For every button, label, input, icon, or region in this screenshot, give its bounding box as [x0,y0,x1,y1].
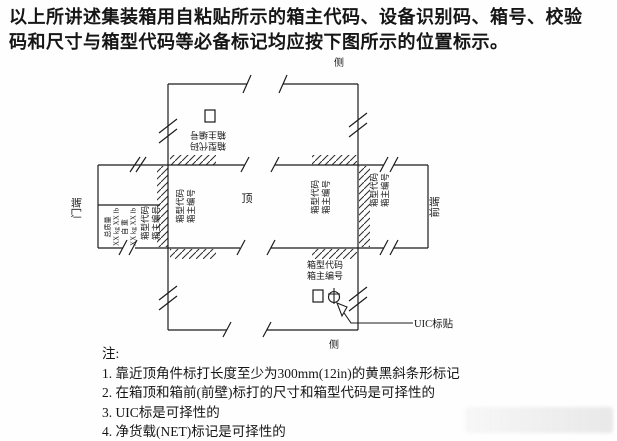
owner-number-label: 箱主编号 [380,173,390,207]
marking-pair-roof-right: 箱型代码 箱主编号 [310,180,331,214]
owner-number-label: 箱主编号 [321,180,331,214]
document-page: 以上所讲述集装箱用自粘贴所示的箱主代码、设备识别码、箱号、校验 码和尺寸与箱型代… [0,0,617,441]
stripe-mark-square-side [313,290,323,302]
gross-weight-value: XX kg XX lb [113,208,121,246]
type-code-label: 箱型代码 [175,189,185,223]
watermark [465,407,613,433]
type-code-label: 箱型代码 [307,259,343,270]
weight-markings: 总质量 XX kg XX lb 自 重 XX kg XX lb [103,208,138,246]
hatch-strip [170,249,216,259]
notes-title: 注: [102,344,522,364]
gross-weight-label: 总质量 [103,217,112,238]
stripe-mark-square-roof [205,110,215,122]
front-end-label: 前端 [428,196,441,217]
roof-label: 顶 [242,192,253,205]
owner-number-label: 箱主编号 [186,189,196,223]
hatch-strip [312,155,357,165]
tare-weight-label: 自 重 [120,219,129,235]
type-code-label: 箱型代码 [369,173,379,207]
hatch-strip [170,155,216,165]
uic-symbol [328,288,340,304]
owner-number-label: 箱主编号 [190,130,226,141]
tare-weight-value: XX kg XX lb [130,208,138,246]
door-end-label: 门端 [70,197,83,218]
note-item-3: 3. UIC标是可择性的 [102,403,522,423]
type-code-label: 箱型代码 [310,180,320,214]
side-label-upper: 侧 [334,56,344,69]
uic-callout-label: UIC标贴 [414,317,454,330]
note-item-1: 1. 靠近顶角件标打长度至少为300mm(12in)的黄黑斜条形标记 [102,364,522,384]
owner-number-label: 箱主编号 [151,206,161,240]
notes-block: 注: 1. 靠近顶角件标打长度至少为300mm(12in)的黄黑斜条形标记 2.… [102,344,522,441]
marking-pair-side-view: 箱型代码 箱主编号 [307,259,343,281]
marking-pair-roof-left: 箱型代码 箱主编号 [175,189,196,223]
marking-pair-roof-top-view: 箱型代码 箱主编号 [190,130,226,152]
owner-number-label: 箱主编号 [307,270,343,281]
type-code-label: 箱型代码 [190,141,226,152]
note-item-2: 2. 在箱顶和箱前(前壁)标打的尺寸和箱型代码是可择性的 [102,383,522,403]
marking-pair-front-end: 箱型代码 箱主编号 [369,173,390,207]
hatch-strip [312,249,357,259]
note-item-4: 4. 净货载(NET)标记是可择性的 [102,422,522,441]
marking-pair-door-end: 箱型代码 箱主编号 [140,206,161,240]
type-code-label: 箱型代码 [140,206,150,240]
